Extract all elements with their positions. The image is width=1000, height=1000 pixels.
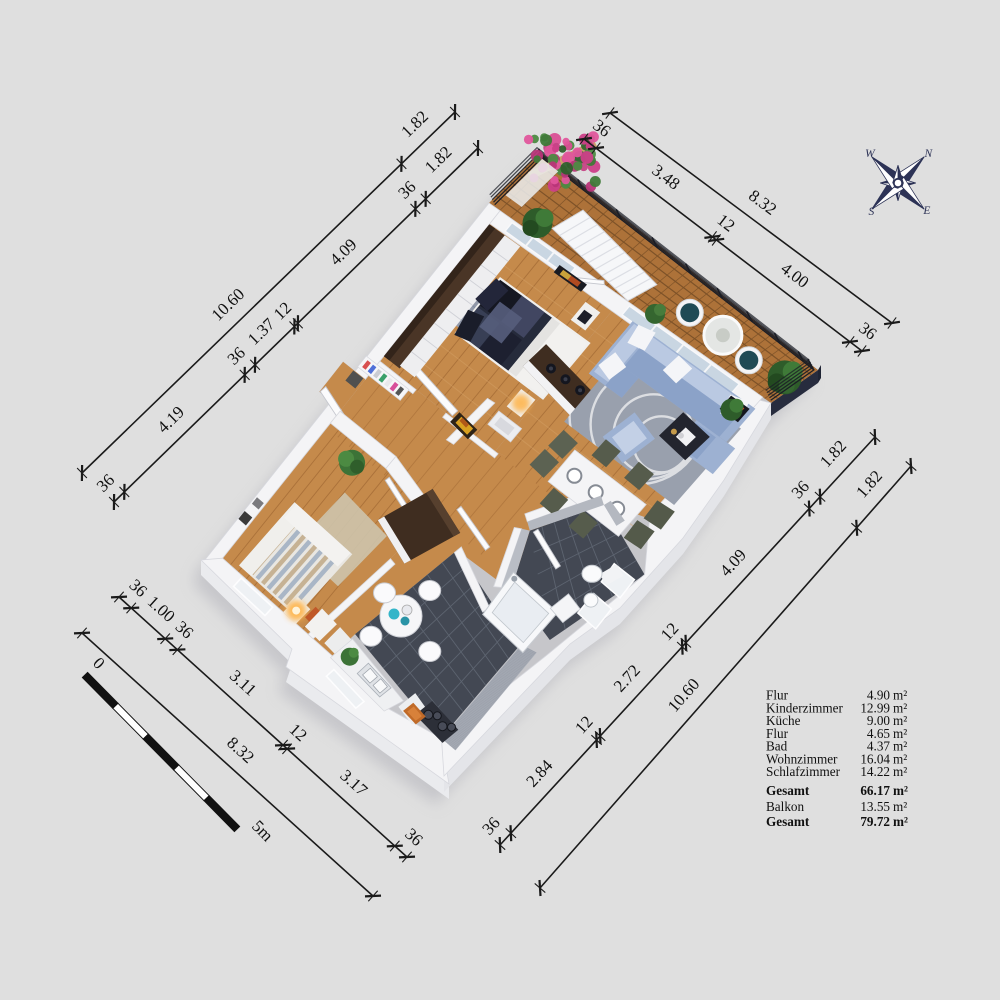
svg-text:Balkon: Balkon xyxy=(766,799,805,814)
svg-text:m²: m² xyxy=(893,783,908,798)
svg-text:79.72: 79.72 xyxy=(860,814,890,829)
svg-text:66.17: 66.17 xyxy=(860,783,890,798)
svg-text:Schlafzimmer: Schlafzimmer xyxy=(766,764,841,779)
svg-text:S: S xyxy=(869,206,875,218)
svg-text:N: N xyxy=(923,148,933,160)
svg-text:Gesamt: Gesamt xyxy=(766,783,810,798)
svg-text:m²: m² xyxy=(893,764,907,779)
svg-text:13.55: 13.55 xyxy=(860,799,890,814)
svg-text:W: W xyxy=(865,148,876,160)
svg-text:E: E xyxy=(922,205,930,217)
svg-text:m²: m² xyxy=(893,814,908,829)
svg-text:m²: m² xyxy=(893,799,907,814)
svg-text:Gesamt: Gesamt xyxy=(766,814,810,829)
svg-text:14.22: 14.22 xyxy=(860,764,890,779)
